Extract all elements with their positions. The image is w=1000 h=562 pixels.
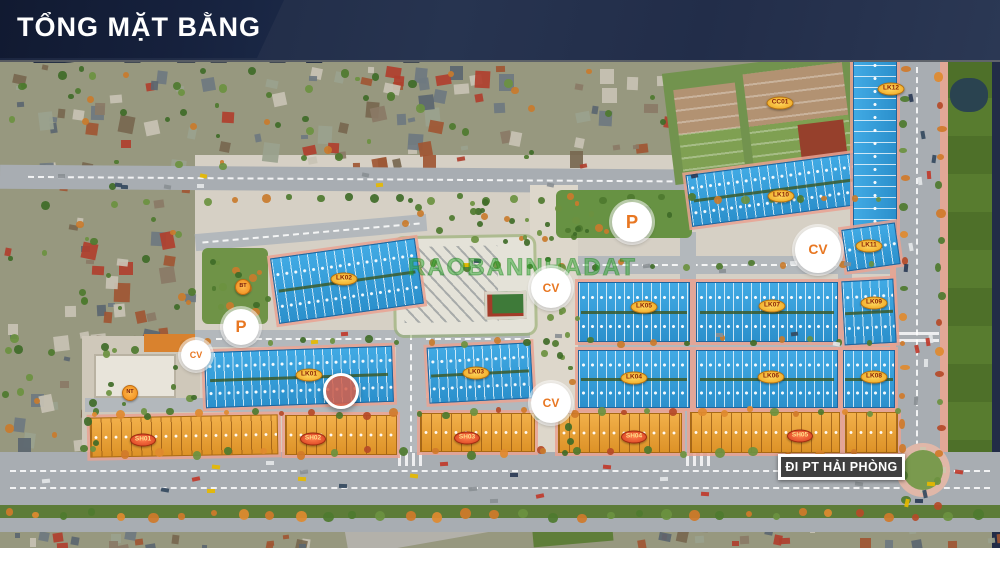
building-roof <box>599 111 613 127</box>
building-roof <box>8 324 18 335</box>
building-roof <box>153 200 164 210</box>
building-roof <box>160 231 176 250</box>
building-roof <box>255 133 263 142</box>
block-lk11 <box>841 222 900 271</box>
building-roof <box>307 156 317 164</box>
building-roof <box>53 532 64 542</box>
building-roof <box>988 538 996 544</box>
pond <box>950 78 988 112</box>
building-roof <box>121 140 131 149</box>
building-roof <box>627 77 638 90</box>
building-roof <box>574 137 585 148</box>
building-roof <box>163 255 176 267</box>
block-lk06 <box>696 350 838 408</box>
building-roof <box>110 94 122 103</box>
slide-bottom-margin <box>0 548 1000 562</box>
building-roof <box>58 108 66 117</box>
title-banner: TỔNG MẶT BẰNG <box>0 0 300 58</box>
building-roof <box>579 163 587 168</box>
building-roof <box>613 145 621 151</box>
building-roof <box>63 356 70 361</box>
building-roof <box>732 541 739 546</box>
building-roof <box>117 115 135 135</box>
building-roof <box>10 335 17 339</box>
building-roof <box>85 122 98 135</box>
block-sh02 <box>285 415 397 455</box>
building-roof <box>644 104 658 114</box>
building-roof <box>18 438 31 453</box>
building-roof <box>222 112 235 124</box>
building-roof <box>338 122 349 134</box>
listing-site-watermark: RAOBANNHADAT <box>408 254 637 282</box>
block-lk08 <box>843 350 895 408</box>
block-lk09 <box>841 279 896 346</box>
building-roof <box>283 535 290 540</box>
building-roof <box>15 533 20 538</box>
block-lk12 <box>853 58 897 232</box>
building-roof <box>17 102 24 107</box>
block-sh06 <box>845 412 898 453</box>
block-sh05 <box>690 412 840 453</box>
building-roof <box>508 131 522 147</box>
building-roof <box>499 74 514 92</box>
block-lk07 <box>696 282 838 342</box>
building-roof <box>12 74 26 85</box>
building-roof <box>72 109 84 120</box>
building-roof <box>495 66 504 72</box>
building-roof <box>60 381 70 388</box>
building-roof <box>185 293 196 301</box>
page-title: TỔNG MẶT BẰNG <box>17 12 261 43</box>
block-sh01 <box>90 414 279 457</box>
block-lk01 <box>204 346 394 409</box>
building-roof <box>493 102 504 113</box>
building-roof <box>327 142 339 152</box>
building-roof <box>70 536 80 545</box>
green-park-strip <box>202 248 268 324</box>
building-roof <box>575 110 591 123</box>
building-roof <box>134 538 143 545</box>
block-lk04 <box>578 350 690 408</box>
apartment-block <box>673 83 745 172</box>
avenue-frontage <box>0 518 1000 532</box>
building-roof <box>64 306 75 317</box>
building-roof <box>262 142 280 162</box>
building-roof <box>38 531 50 542</box>
building-roof <box>53 335 69 352</box>
building-roof <box>104 312 113 323</box>
master-plan-slide: RAOBANNHADAT PPCVCVCVCVLK01LK02LK03LK04L… <box>0 0 1000 562</box>
building-roof <box>740 536 749 544</box>
building-roof <box>146 312 156 322</box>
linear-park <box>556 190 692 238</box>
building-roof <box>69 225 78 232</box>
building-roof <box>106 276 118 289</box>
block-sh03 <box>420 413 535 452</box>
crosswalk <box>398 453 424 466</box>
building-roof <box>4 248 11 257</box>
building-roof <box>91 265 104 275</box>
building-roof <box>172 535 180 544</box>
building-roof <box>474 93 483 102</box>
building-roof <box>659 532 672 542</box>
building-roof <box>475 70 491 88</box>
block-lk05 <box>578 282 690 342</box>
building-roof <box>144 120 161 137</box>
building-roof <box>428 120 444 135</box>
building-roof <box>30 538 37 546</box>
avenue-median <box>0 505 1000 518</box>
building-roof <box>159 266 176 284</box>
block-sh04 <box>558 413 682 453</box>
building-roof <box>80 242 98 260</box>
building-roof <box>125 531 137 541</box>
building-roof <box>433 89 447 104</box>
building-roof <box>77 218 84 226</box>
building-roof <box>457 156 465 161</box>
building-roof <box>633 145 639 150</box>
building-roof <box>408 117 415 122</box>
direction-sign: ĐI PT HẢI PHÒNG <box>778 454 905 480</box>
building-roof <box>38 111 54 131</box>
building-roof <box>38 393 54 412</box>
building-roof <box>996 534 1000 543</box>
building-roof <box>600 69 614 84</box>
building-roof <box>302 145 317 157</box>
building-roof <box>135 310 147 324</box>
building-roof <box>318 125 333 144</box>
building-roof <box>418 94 435 111</box>
building-roof <box>423 155 437 168</box>
building-roof <box>271 92 286 107</box>
lane-dashes <box>10 487 990 489</box>
building-roof <box>94 102 104 114</box>
building-roof <box>418 141 433 157</box>
building-roof <box>454 84 470 96</box>
building-roof <box>117 258 128 266</box>
building-roof <box>369 105 387 122</box>
building-roof <box>301 134 308 139</box>
building-roof <box>695 535 704 542</box>
crosswalk <box>897 330 939 342</box>
building-roof <box>219 142 231 154</box>
building-roof <box>16 86 22 90</box>
crosswalk <box>686 453 712 466</box>
building-roof <box>85 259 93 264</box>
block-lk03 <box>427 342 534 403</box>
building-roof <box>397 114 407 126</box>
building-roof <box>575 84 584 91</box>
building-roof <box>13 417 26 432</box>
building-roof <box>187 127 197 139</box>
building-roof <box>461 146 468 151</box>
sidewalk <box>940 58 948 516</box>
building-roof <box>602 88 617 103</box>
building-roof <box>591 105 598 114</box>
building-roof <box>113 304 125 318</box>
